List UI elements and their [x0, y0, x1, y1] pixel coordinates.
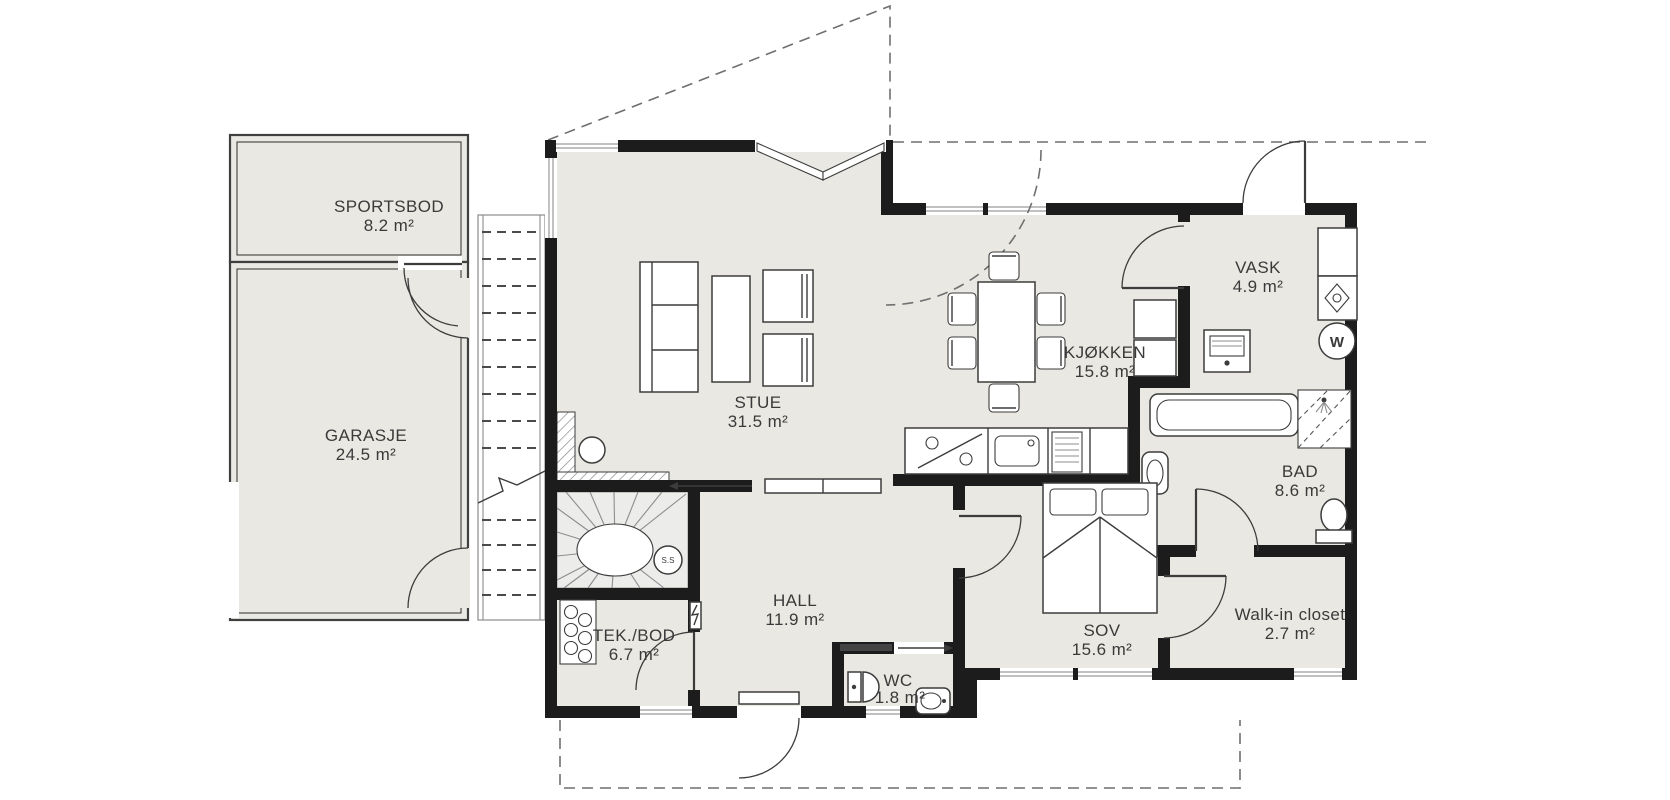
- svg-text:15.6 m²: 15.6 m²: [1072, 640, 1132, 659]
- svg-text:SOV: SOV: [1083, 621, 1120, 640]
- svg-text:8.2 m²: 8.2 m²: [364, 216, 415, 235]
- garage-door1-opening: [458, 278, 470, 338]
- svg-text:6.7 m²: 6.7 m²: [609, 645, 660, 664]
- svg-text:4.9 m²: 4.9 m²: [1233, 277, 1284, 296]
- exterior-stair-outline: [478, 215, 545, 620]
- bathtub: [1150, 394, 1298, 436]
- pipe-manifold: [560, 600, 596, 664]
- svg-text:VASK: VASK: [1235, 258, 1281, 277]
- svg-text:15.8 m²: 15.8 m²: [1075, 362, 1135, 381]
- window-wc-south: [866, 706, 900, 718]
- room-label-stue: STUE 31.5 m²: [728, 393, 788, 431]
- coffee-table: [712, 276, 750, 382]
- svg-text:KJØKKEN: KJØKKEN: [1064, 343, 1146, 362]
- garage-west-opening: [225, 482, 239, 618]
- pillow-right: [1102, 489, 1148, 515]
- stair-marker-label: S.S: [662, 556, 675, 565]
- floor-plan-page: S.S: [0, 0, 1670, 800]
- window-hall-south: [640, 706, 692, 718]
- svg-text:24.5 m²: 24.5 m²: [336, 445, 396, 464]
- dining-table: [978, 282, 1035, 382]
- interior-stair: S.S: [557, 492, 688, 588]
- shower: [1298, 390, 1351, 448]
- svg-text:11.9 m²: 11.9 m²: [765, 610, 824, 629]
- sofa: [640, 262, 698, 392]
- floor-plan-svg: S.S: [0, 0, 1670, 800]
- wall-vask-bad: [1128, 376, 1190, 388]
- wall-wc-west: [832, 654, 844, 706]
- pillow-left: [1050, 489, 1096, 515]
- washing-machine: W: [1319, 323, 1355, 359]
- chimney-circle: [579, 437, 605, 463]
- svg-text:SPORTSBOD: SPORTSBOD: [334, 197, 444, 216]
- porch-outline-dashed: [560, 720, 1240, 788]
- sov-furniture: [1043, 483, 1157, 613]
- armchair-1: [763, 270, 813, 322]
- svg-text:Walk-in closet: Walk-in closet: [1235, 605, 1346, 624]
- svg-text:TEK./BOD: TEK./BOD: [593, 626, 676, 645]
- vask-exterior-door: [1243, 141, 1305, 215]
- electrical-panel: [690, 602, 701, 629]
- wall-stair-east: [688, 492, 700, 600]
- svg-text:31.5 m²: 31.5 m²: [728, 412, 788, 431]
- window-sov-south: [1000, 668, 1152, 680]
- svg-text:1.8 m²: 1.8 m²: [875, 688, 926, 707]
- room-label-kjokken: KJØKKEN 15.8 m²: [1064, 343, 1146, 381]
- room-label-hall: HALL 11.9 m²: [765, 591, 824, 629]
- window-stue-west: [545, 158, 557, 238]
- window-walkin-south: [1294, 668, 1342, 680]
- svg-text:STUE: STUE: [735, 393, 782, 412]
- kitchen-counter: [905, 428, 1128, 474]
- room-label-bad: BAD 8.6 m²: [1275, 462, 1326, 500]
- vask-counter: [1318, 228, 1357, 320]
- garage-door2-opening: [458, 548, 470, 608]
- stair-newel: [577, 524, 653, 576]
- exterior-stair: [478, 215, 545, 620]
- window-stue-north: [556, 140, 618, 152]
- svg-text:8.6 m²: 8.6 m²: [1275, 481, 1326, 500]
- armchair-2: [763, 334, 813, 386]
- vask-sink-cabinet: [1204, 330, 1250, 372]
- washing-machine-label: W: [1330, 334, 1345, 351]
- svg-text:HALL: HALL: [773, 591, 817, 610]
- svg-text:BAD: BAD: [1282, 462, 1318, 481]
- wall-stair-south: [557, 588, 700, 600]
- svg-text:2.7 m²: 2.7 m²: [1265, 624, 1316, 643]
- room-label-garasje: GARASJE 24.5 m²: [325, 426, 407, 464]
- entrance-door-leaf: [739, 692, 799, 704]
- svg-text:GARASJE: GARASJE: [325, 426, 407, 445]
- double-bed: [1043, 483, 1157, 613]
- roof-guide-dashed-line: [548, 6, 890, 140]
- room-label-vask: VASK 4.9 m²: [1233, 258, 1284, 296]
- tall-kitchen-units: [1134, 300, 1176, 376]
